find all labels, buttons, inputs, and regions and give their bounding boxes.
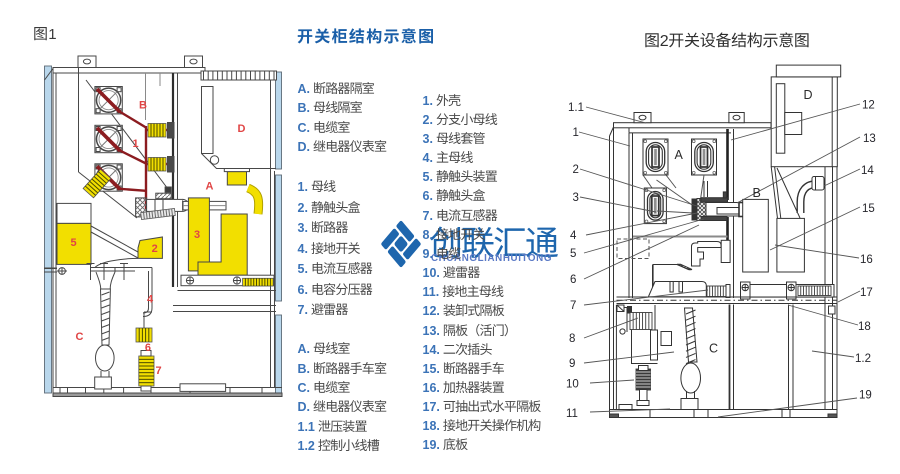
svg-text:15: 15: [862, 203, 875, 215]
svg-text:2: 2: [573, 164, 579, 176]
svg-text:9: 9: [569, 358, 575, 370]
svg-text:1.2: 1.2: [855, 353, 871, 365]
svg-text:D: D: [804, 84, 813, 103]
svg-text:10: 10: [566, 379, 579, 391]
svg-text:7: 7: [570, 300, 576, 312]
svg-text:18: 18: [858, 321, 871, 333]
svg-text:C: C: [709, 338, 718, 357]
svg-text:5: 5: [570, 248, 576, 260]
svg-text:1.1: 1.1: [568, 102, 584, 114]
svg-text:A: A: [675, 144, 684, 163]
svg-text:17: 17: [860, 287, 873, 299]
svg-text:6: 6: [570, 274, 576, 286]
svg-text:16: 16: [860, 254, 873, 266]
svg-text:12: 12: [862, 100, 875, 112]
svg-text:3: 3: [573, 192, 579, 204]
svg-text:13: 13: [863, 133, 876, 145]
svg-text:1: 1: [573, 127, 579, 139]
svg-text:B: B: [753, 182, 761, 201]
svg-text:11: 11: [566, 408, 578, 420]
svg-text:14: 14: [861, 165, 874, 177]
svg-text:4: 4: [570, 230, 577, 242]
svg-text:19: 19: [859, 390, 872, 402]
svg-text:8: 8: [569, 333, 575, 345]
